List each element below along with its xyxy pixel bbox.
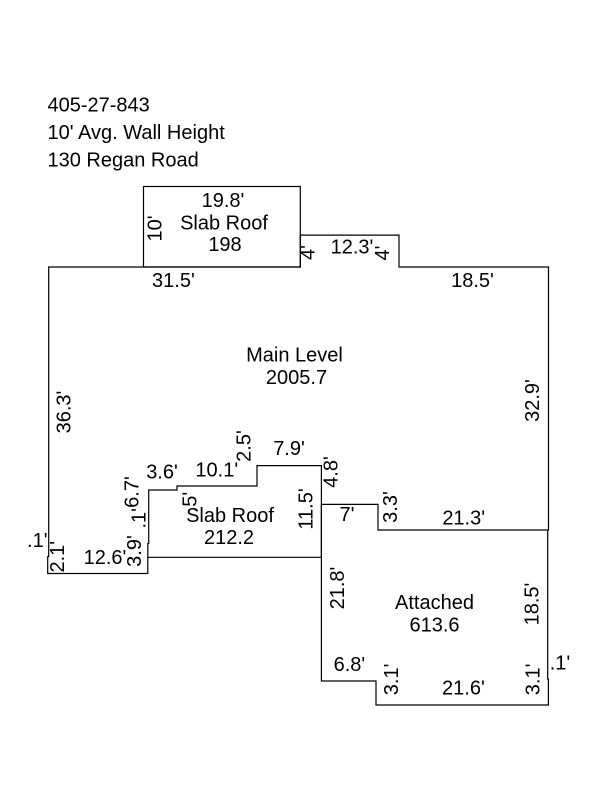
- svg-text:32.9': 32.9': [522, 379, 544, 422]
- svg-text:2.1': 2.1': [47, 541, 69, 573]
- svg-text:Slab Roof: Slab Roof: [180, 213, 268, 235]
- svg-text:198: 198: [208, 234, 241, 256]
- svg-text:12.6': 12.6': [84, 547, 127, 569]
- svg-text:11.5': 11.5': [296, 488, 318, 529]
- svg-text:31.5': 31.5': [152, 270, 195, 292]
- svg-text:Slab Roof: Slab Roof: [186, 505, 274, 527]
- svg-text:Main Level: Main Level: [246, 345, 343, 367]
- svg-text:130 Regan Road: 130 Regan Road: [48, 150, 199, 172]
- svg-text:3.9': 3.9': [124, 535, 146, 567]
- svg-text:.1': .1': [27, 530, 48, 552]
- svg-text:12.3': 12.3': [331, 237, 374, 259]
- svg-text:3.1': 3.1': [523, 664, 545, 696]
- svg-text:4': 4': [298, 245, 320, 260]
- svg-text:4.8': 4.8': [321, 456, 343, 488]
- svg-text:21.6': 21.6': [442, 678, 485, 700]
- svg-text:7': 7': [340, 504, 355, 526]
- svg-text:3.3': 3.3': [380, 491, 402, 523]
- svg-text:212.2: 212.2: [204, 527, 254, 549]
- svg-text:2.5': 2.5': [234, 430, 256, 462]
- svg-text:3.1': 3.1': [381, 664, 403, 696]
- svg-text:6.8': 6.8': [334, 654, 366, 676]
- svg-text:21.8': 21.8': [327, 567, 349, 610]
- svg-text:405-27-843: 405-27-843: [48, 95, 150, 117]
- svg-text:10' Avg. Wall Height: 10' Avg. Wall Height: [48, 122, 226, 144]
- svg-text:7.9': 7.9': [273, 438, 305, 460]
- svg-text:36.3': 36.3': [54, 391, 76, 434]
- svg-text:.1': .1': [128, 508, 150, 529]
- svg-text:613.6: 613.6: [409, 615, 459, 637]
- svg-text:Attached: Attached: [395, 592, 474, 614]
- svg-text:18.5': 18.5': [522, 583, 544, 626]
- svg-text:10': 10': [145, 215, 167, 241]
- svg-text:19.8': 19.8': [202, 190, 245, 212]
- svg-text:6.7': 6.7': [122, 476, 144, 508]
- svg-text:.1': .1': [550, 653, 571, 675]
- svg-text:18.5': 18.5': [451, 270, 494, 292]
- svg-text:2005.7: 2005.7: [266, 367, 327, 389]
- svg-text:10.1': 10.1': [195, 459, 238, 481]
- svg-text:21.3': 21.3': [442, 508, 485, 530]
- svg-text:3.6': 3.6': [146, 462, 178, 484]
- svg-text:4': 4': [372, 246, 394, 261]
